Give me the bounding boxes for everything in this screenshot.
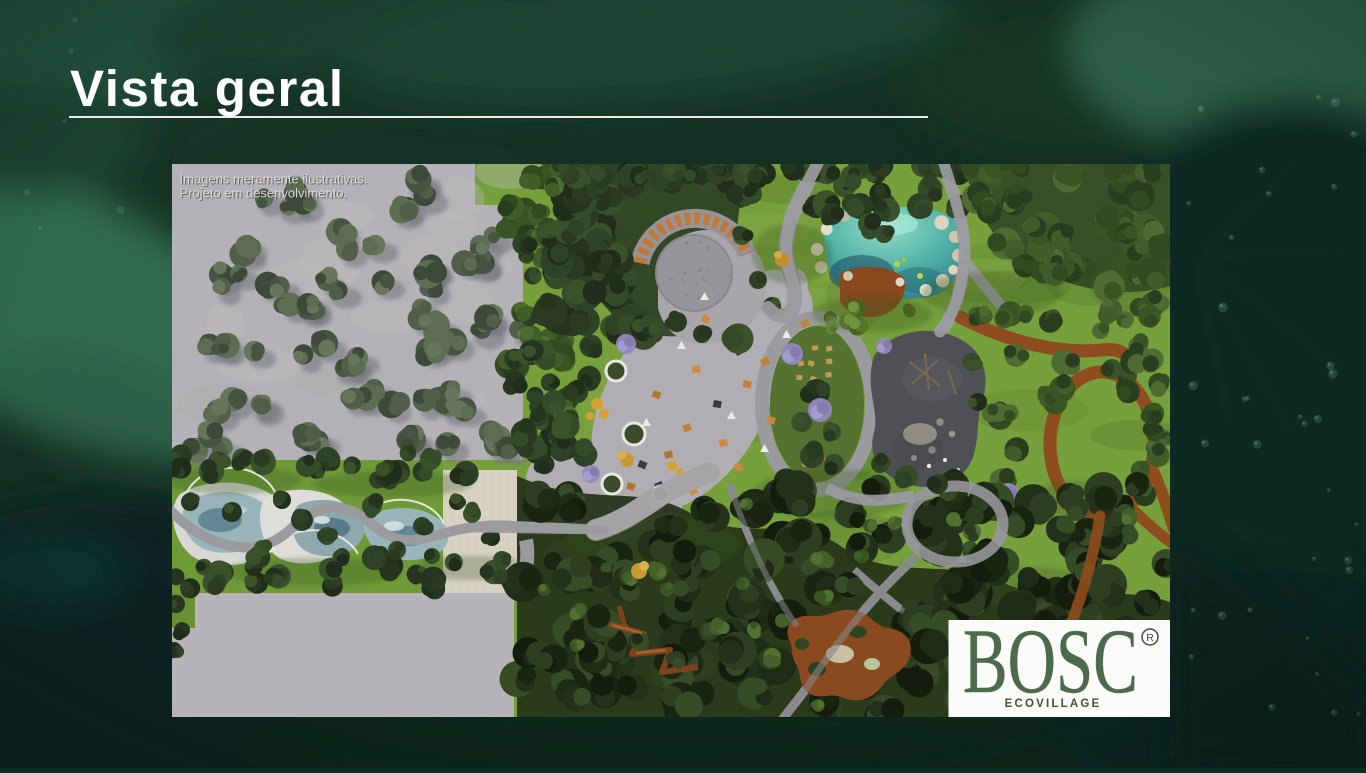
svg-text:Projeto em desenvolvimento.: Projeto em desenvolvimento. xyxy=(180,186,348,201)
svg-text:ECOVILLAGE: ECOVILLAGE xyxy=(1005,698,1102,710)
svg-text:BOSC: BOSC xyxy=(963,610,1138,712)
svg-text:R: R xyxy=(1146,632,1154,644)
svg-text:Imagens meramente ilustrativas: Imagens meramente ilustrativas. xyxy=(180,172,368,187)
